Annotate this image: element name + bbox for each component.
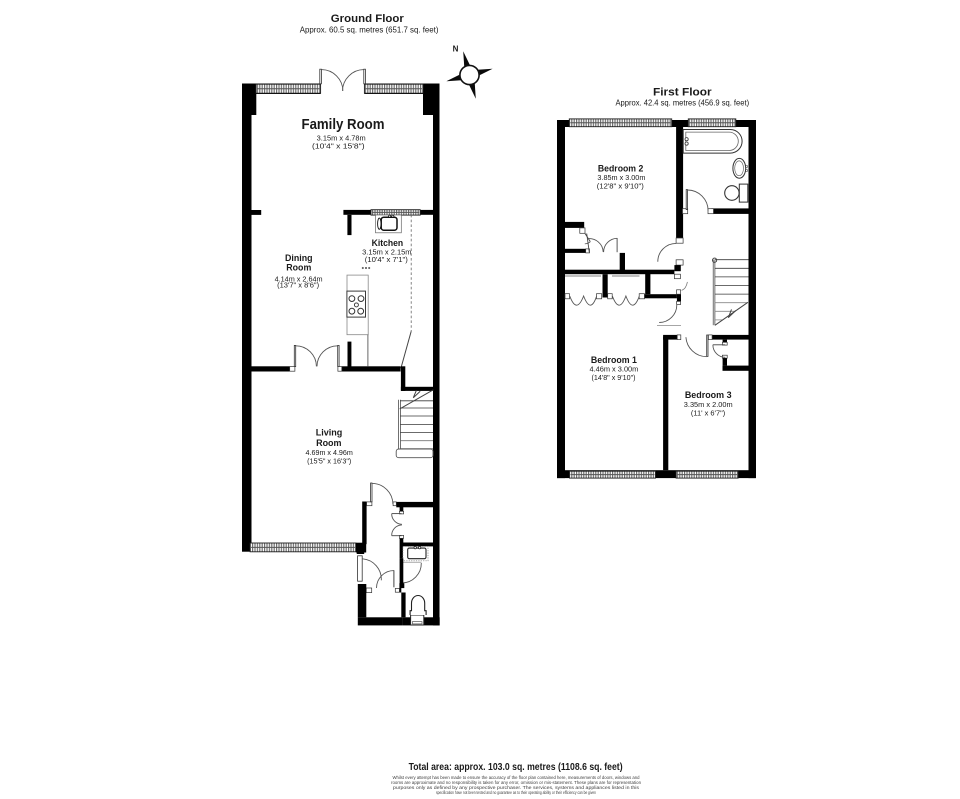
svg-text:Total area: approx. 103.0 sq.: Total area: approx. 103.0 sq. metres (11… [409,762,623,773]
svg-text:(12'8" x 9'10"): (12'8" x 9'10") [597,182,644,191]
svg-text:(10'4" x 7'1"): (10'4" x 7'1") [365,255,408,264]
svg-text:Room: Room [316,438,341,448]
svg-text:Bedroom 3: Bedroom 3 [685,390,732,400]
svg-text:(14'8" x 9'10"): (14'8" x 9'10") [592,373,636,382]
svg-text:Ground Floor: Ground Floor [331,13,405,25]
svg-text:specification have not been te: specification have not been tested and n… [436,790,596,795]
svg-text:Living: Living [316,428,343,438]
svg-text:(10'4" x 15'8"): (10'4" x 15'8") [312,141,365,150]
svg-text:Room: Room [286,261,311,272]
svg-text:Approx. 60.5 sq. metres (651.: Approx. 60.5 sq. metres (651.7 sq. feet) [300,25,439,35]
svg-text:Bedroom 1: Bedroom 1 [591,355,637,365]
svg-text:4.46m x 3.00m: 4.46m x 3.00m [590,365,639,374]
svg-text:Family Room: Family Room [302,116,385,133]
svg-text:N: N [453,45,459,54]
svg-text:(11' x 6'7"): (11' x 6'7") [691,408,725,417]
svg-text:Kitchen: Kitchen [372,237,404,248]
svg-text:Bedroom 2: Bedroom 2 [598,163,643,174]
svg-text:Approx. 42.4 sq. metres (456.: Approx. 42.4 sq. metres (456.9 sq. feet) [616,97,750,107]
svg-text:(13'7" x 8'6"): (13'7" x 8'6") [277,281,319,290]
svg-text:(15'5" x 16'3"): (15'5" x 16'3") [307,456,351,465]
